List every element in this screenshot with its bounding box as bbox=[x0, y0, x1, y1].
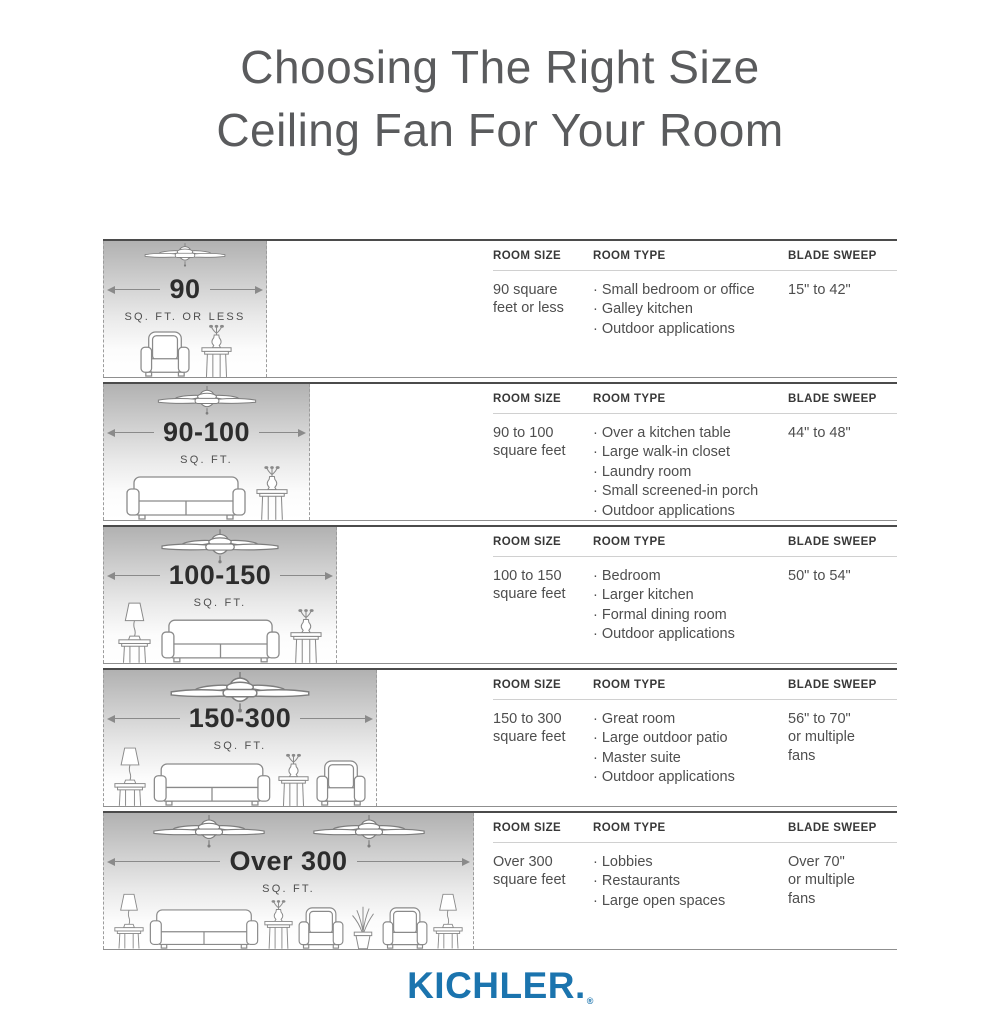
spec-table: ROOM SIZE ROOM TYPE BLADE SWEEP 90 to 10… bbox=[493, 384, 897, 521]
table-header: ROOM SIZE ROOM TYPE BLADE SWEEP bbox=[493, 393, 897, 414]
room-type-item: · Small screened-in porch bbox=[593, 482, 788, 500]
width-measure: Over 300 bbox=[107, 846, 470, 877]
room-size-value: 90 square feet or less bbox=[493, 281, 577, 318]
arrow-right-icon bbox=[255, 286, 263, 294]
registered-mark: ® bbox=[587, 996, 594, 1006]
col-header-room-type: ROOM TYPE bbox=[593, 393, 788, 405]
col-header-room-size: ROOM SIZE bbox=[493, 250, 593, 262]
table-body: 100 to 150 square feet · Bedroom· Larger… bbox=[493, 567, 897, 645]
side-table-lamp-icon bbox=[118, 602, 151, 663]
room-type-item: · Outdoor applications bbox=[593, 625, 788, 643]
room-type-list: · Great room· Large outdoor patio· Maste… bbox=[593, 710, 788, 788]
col-header-room-type: ROOM TYPE bbox=[593, 536, 788, 548]
blade-sweep-value: 50" to 54" bbox=[788, 567, 883, 585]
col-header-blade-sweep: BLADE SWEEP bbox=[788, 393, 897, 405]
sqft-value: Over 300 bbox=[229, 846, 347, 877]
furniture-row bbox=[104, 324, 266, 377]
sqft-value: 100-150 bbox=[169, 560, 272, 591]
width-measure: 90-100 bbox=[107, 417, 306, 448]
size-row-100-150: 100-150 SQ. FT. ROOM SIZE ROOM TYPE BLAD… bbox=[103, 525, 897, 664]
sqft-value: 150-300 bbox=[189, 703, 292, 734]
room-illustration-90-100: 90-100 SQ. FT. bbox=[103, 384, 310, 520]
col-header-room-size: ROOM SIZE bbox=[493, 679, 593, 691]
col-header-blade-sweep: BLADE SWEEP bbox=[788, 536, 897, 548]
floor-plant-icon bbox=[349, 903, 377, 949]
room-size-value: Over 300 square feet bbox=[493, 853, 577, 890]
arrow-right-icon bbox=[365, 715, 373, 723]
table-header: ROOM SIZE ROOM TYPE BLADE SWEEP bbox=[493, 536, 897, 557]
width-measure: 100-150 bbox=[107, 560, 333, 591]
sofa-icon bbox=[126, 476, 246, 520]
room-type-item: · Galley kitchen bbox=[593, 300, 788, 318]
table-header: ROOM SIZE ROOM TYPE BLADE SWEEP bbox=[493, 822, 897, 843]
page-title: Choosing The Right Size Ceiling Fan For … bbox=[0, 36, 1000, 162]
spec-table: ROOM SIZE ROOM TYPE BLADE SWEEP 90 squar… bbox=[493, 241, 897, 339]
room-type-item: · Large walk-in closet bbox=[593, 443, 788, 461]
size-row-90: 90 SQ. FT. OR LESS ROOM SIZE ROOM TYPE B… bbox=[103, 239, 897, 378]
fan-row bbox=[104, 529, 336, 564]
col-header-room-type: ROOM TYPE bbox=[593, 679, 788, 691]
table-header: ROOM SIZE ROOM TYPE BLADE SWEEP bbox=[493, 679, 897, 700]
width-measure: 90 bbox=[107, 274, 263, 305]
col-header-room-type: ROOM TYPE bbox=[593, 250, 788, 262]
side-table-vase-icon bbox=[201, 324, 232, 377]
size-guide: 90 SQ. FT. OR LESS ROOM SIZE ROOM TYPE B… bbox=[103, 239, 897, 954]
room-type-list: · Bedroom· Larger kitchen· Formal dining… bbox=[593, 567, 788, 645]
sqft-value: 90-100 bbox=[163, 417, 250, 448]
side-table-lamp-icon bbox=[433, 893, 463, 949]
blade-sweep-value: 56" to 70" or multiple fans bbox=[788, 710, 883, 765]
arrow-right-icon bbox=[325, 572, 333, 580]
col-header-room-size: ROOM SIZE bbox=[493, 536, 593, 548]
arrow-right-icon bbox=[298, 429, 306, 437]
spec-table: ROOM SIZE ROOM TYPE BLADE SWEEP 100 to 1… bbox=[493, 527, 897, 645]
room-type-item: · Laundry room bbox=[593, 463, 788, 481]
furniture-row bbox=[104, 465, 309, 520]
armchair-icon bbox=[316, 760, 366, 806]
col-header-blade-sweep: BLADE SWEEP bbox=[788, 679, 897, 691]
col-header-blade-sweep: BLADE SWEEP bbox=[788, 250, 897, 262]
furniture-row bbox=[104, 602, 336, 663]
arrow-left-icon bbox=[107, 715, 115, 723]
room-type-item: · Bedroom bbox=[593, 567, 788, 585]
arrow-left-icon bbox=[107, 286, 115, 294]
table-header: ROOM SIZE ROOM TYPE BLADE SWEEP bbox=[493, 250, 897, 271]
room-type-item: · Outdoor applications bbox=[593, 768, 788, 786]
room-size-value: 90 to 100 square feet bbox=[493, 424, 577, 461]
spec-table: ROOM SIZE ROOM TYPE BLADE SWEEP 150 to 3… bbox=[493, 670, 897, 788]
side-table-vase-icon bbox=[256, 465, 288, 520]
sofa-icon bbox=[161, 619, 280, 663]
room-type-item: · Large outdoor patio bbox=[593, 729, 788, 747]
ceiling-fan-icon bbox=[151, 815, 267, 848]
side-table-lamp-icon bbox=[114, 893, 144, 949]
col-header-blade-sweep: BLADE SWEEP bbox=[788, 822, 897, 834]
fan-row bbox=[104, 815, 473, 848]
room-illustration-150-300: 150-300 SQ. FT. bbox=[103, 670, 377, 806]
arrow-left-icon bbox=[107, 429, 115, 437]
col-header-room-type: ROOM TYPE bbox=[593, 822, 788, 834]
col-header-room-size: ROOM SIZE bbox=[493, 393, 593, 405]
title-line-1: Choosing The Right Size bbox=[240, 41, 760, 93]
room-type-list: · Small bedroom or office· Galley kitche… bbox=[593, 281, 788, 339]
sofa-icon bbox=[153, 763, 271, 806]
furniture-row bbox=[104, 893, 473, 949]
blade-sweep-value: Over 70" or multiple fans bbox=[788, 853, 883, 908]
ceiling-fan-icon bbox=[159, 529, 281, 564]
room-type-list: · Lobbies· Restaurants· Large open space… bbox=[593, 853, 788, 911]
room-type-item: · Large open spaces bbox=[593, 892, 788, 910]
size-row-over-300: Over 300 SQ. FT. ROOM SIZE ROOM TYPE BLA… bbox=[103, 811, 897, 950]
room-size-value: 100 to 150 square feet bbox=[493, 567, 577, 604]
blade-sweep-value: 44" to 48" bbox=[788, 424, 883, 442]
armchair-icon bbox=[139, 331, 191, 377]
blade-sweep-value: 15" to 42" bbox=[788, 281, 883, 299]
table-body: 90 square feet or less · Small bedroom o… bbox=[493, 281, 897, 339]
room-type-item: · Restaurants bbox=[593, 872, 788, 890]
room-type-item: · Outdoor applications bbox=[593, 502, 788, 520]
col-header-room-size: ROOM SIZE bbox=[493, 822, 593, 834]
fan-row bbox=[104, 386, 309, 415]
room-type-list: · Over a kitchen table· Large walk-in cl… bbox=[593, 424, 788, 521]
spec-table: ROOM SIZE ROOM TYPE BLADE SWEEP Over 300… bbox=[493, 813, 897, 911]
sofa-icon bbox=[149, 909, 259, 949]
room-illustration-90: 90 SQ. FT. OR LESS bbox=[103, 241, 267, 377]
room-size-value: 150 to 300 square feet bbox=[493, 710, 577, 747]
size-row-150-300: 150-300 SQ. FT. ROOM SIZE ROOM TYPE BLAD… bbox=[103, 668, 897, 807]
title-line-2: Ceiling Fan For Your Room bbox=[216, 104, 783, 156]
fan-row bbox=[104, 243, 266, 267]
arrow-left-icon bbox=[107, 858, 115, 866]
room-type-item: · Formal dining room bbox=[593, 606, 788, 624]
kichler-logo: KICHLER.® bbox=[0, 965, 1000, 1007]
table-body: 150 to 300 square feet · Great room· Lar… bbox=[493, 710, 897, 788]
side-table-vase-icon bbox=[290, 608, 322, 663]
side-table-vase-icon bbox=[278, 753, 309, 806]
ceiling-fan-icon bbox=[155, 386, 259, 415]
room-type-item: · Outdoor applications bbox=[593, 320, 788, 338]
table-body: Over 300 square feet · Lobbies· Restaura… bbox=[493, 853, 897, 911]
ceiling-fan-icon bbox=[311, 815, 427, 848]
ceiling-fan-icon bbox=[143, 243, 227, 267]
room-type-item: · Master suite bbox=[593, 749, 788, 767]
table-body: 90 to 100 square feet · Over a kitchen t… bbox=[493, 424, 897, 521]
room-type-item: · Lobbies bbox=[593, 853, 788, 871]
room-type-item: · Great room bbox=[593, 710, 788, 728]
width-measure: 150-300 bbox=[107, 703, 373, 734]
side-table-vase-icon bbox=[264, 899, 293, 949]
room-type-item: · Over a kitchen table bbox=[593, 424, 788, 442]
room-type-item: · Larger kitchen bbox=[593, 586, 788, 604]
furniture-row bbox=[104, 747, 376, 806]
arrow-right-icon bbox=[462, 858, 470, 866]
room-illustration-100-150: 100-150 SQ. FT. bbox=[103, 527, 337, 663]
size-row-90-100: 90-100 SQ. FT. ROOM SIZE ROOM TYPE BLADE… bbox=[103, 382, 897, 521]
armchair-icon bbox=[382, 907, 428, 949]
side-table-lamp-icon bbox=[114, 747, 146, 806]
sqft-value: 90 bbox=[169, 274, 200, 305]
room-type-item: · Small bedroom or office bbox=[593, 281, 788, 299]
room-illustration-over-300: Over 300 SQ. FT. bbox=[103, 813, 474, 949]
arrow-left-icon bbox=[107, 572, 115, 580]
armchair-icon bbox=[298, 907, 344, 949]
sqft-unit: SQ. FT. OR LESS bbox=[104, 311, 266, 323]
